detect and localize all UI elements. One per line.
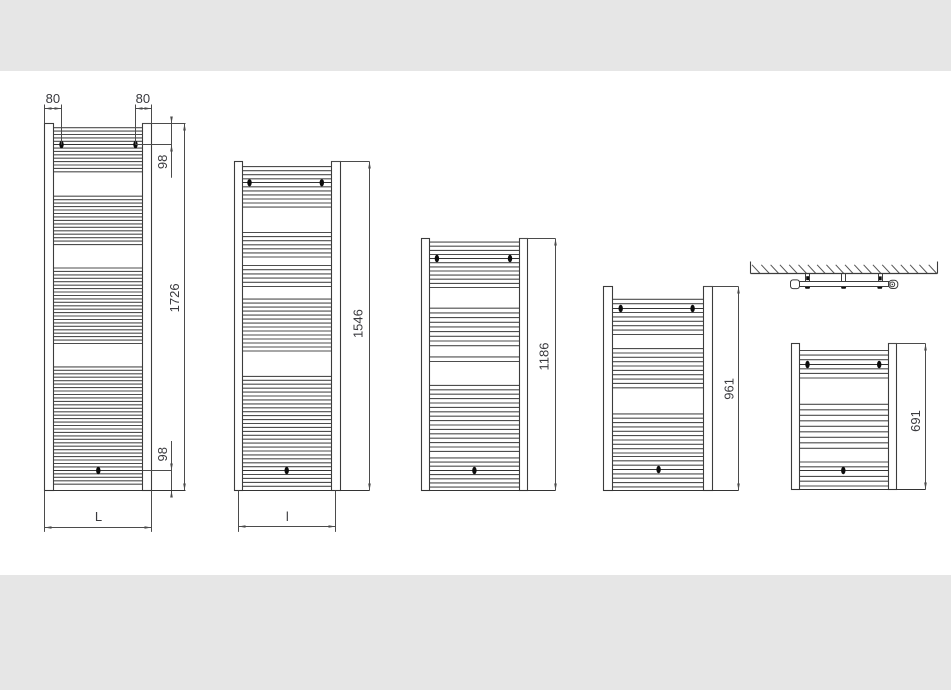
svg-text:l: l: [286, 509, 289, 524]
svg-text:80: 80: [46, 91, 60, 106]
svg-text:1186: 1186: [537, 343, 552, 371]
svg-text:691: 691: [908, 410, 923, 432]
svg-text:961: 961: [721, 378, 736, 400]
svg-text:L: L: [95, 509, 102, 524]
svg-text:98: 98: [155, 155, 170, 169]
svg-text:1726: 1726: [167, 283, 182, 312]
svg-text:80: 80: [136, 91, 150, 106]
svg-text:1546: 1546: [351, 309, 366, 338]
svg-text:98: 98: [155, 447, 170, 461]
